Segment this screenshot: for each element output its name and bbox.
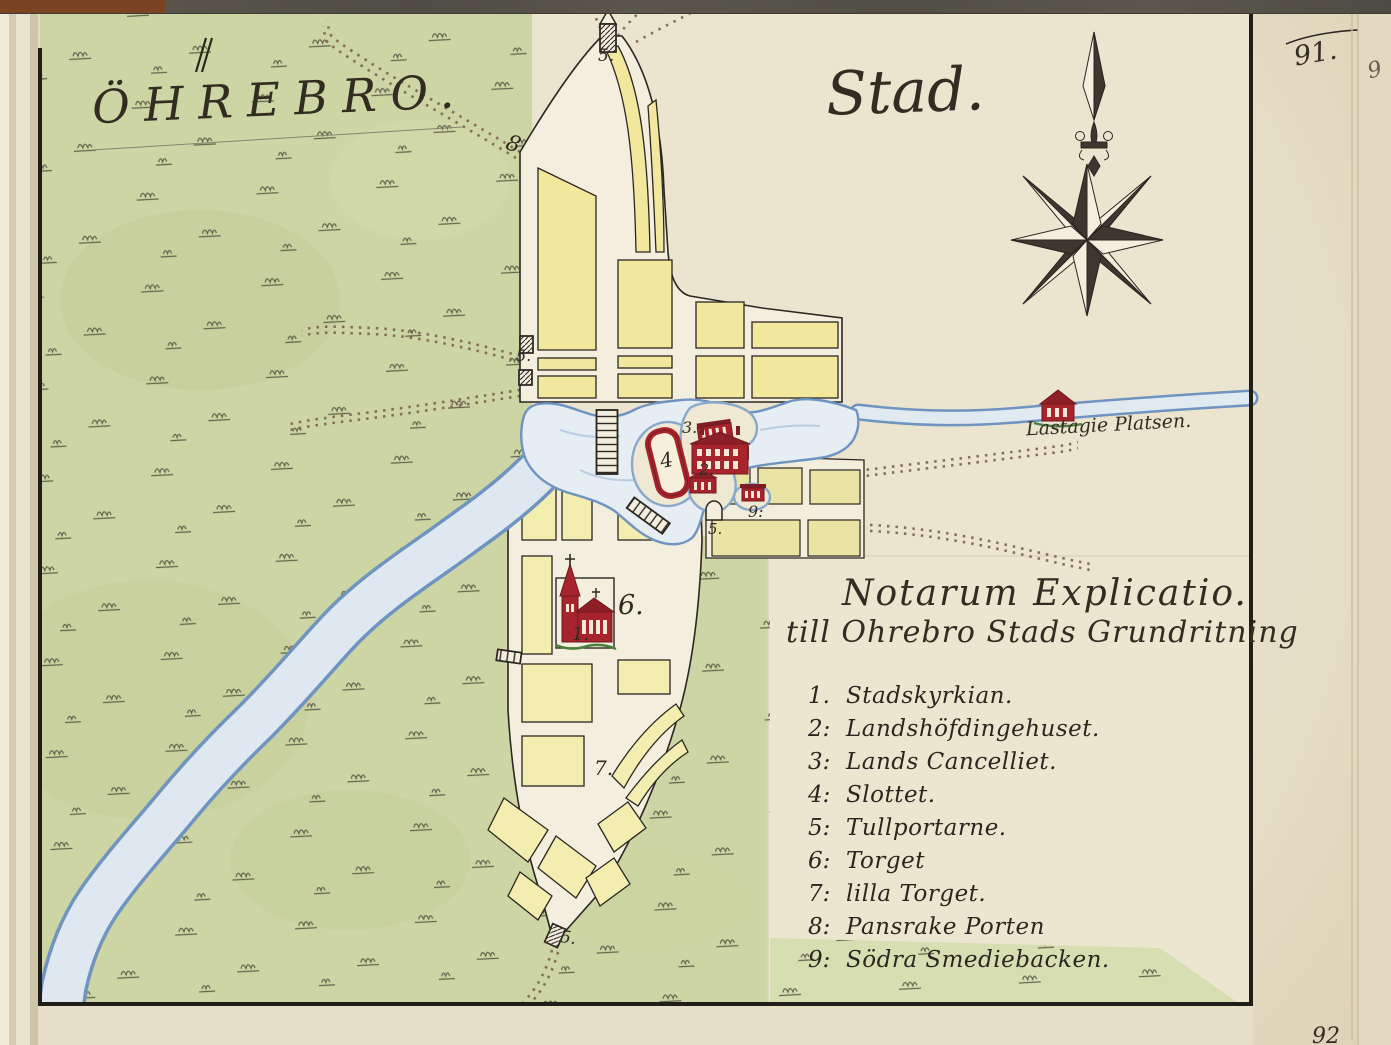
legend-item: 5:Tullportarne. (808, 815, 1110, 841)
legend-title: Notarum Explicatio. (842, 576, 1248, 612)
legend-item-number: 4: (808, 782, 846, 808)
south-gate-number: 5. (559, 929, 577, 948)
folio-number: 91. (1292, 36, 1339, 70)
legend-item-label: Torget (846, 848, 925, 874)
hofdingehus-number: 2. (699, 462, 714, 478)
north-gate-number: 5. (598, 48, 614, 65)
legend-item-label: Slottet. (846, 782, 936, 808)
cancelliet-number: 3. (682, 420, 697, 436)
smediebacken-street-number: 9: (748, 504, 764, 520)
legend-item-number: 8: (808, 914, 846, 940)
legend-item-label: Stadskyrkian. (846, 683, 1013, 709)
next-folio-number: 92 (1312, 1026, 1340, 1045)
legend-item-number: 1. (808, 683, 846, 709)
legend-item-number: 6: (808, 848, 846, 874)
torget-number: 6. (618, 592, 644, 619)
legend-item-number: 9: (808, 947, 846, 973)
book-page-edge (30, 0, 38, 1045)
legend-item-label: Södra Smediebacken. (846, 947, 1110, 973)
legend-item-label: Pansrake Porten (846, 914, 1045, 940)
legend-item: 3:Lands Cancelliet. (808, 749, 1110, 775)
book-page-edge (9, 0, 16, 1045)
book-page-edge (0, 0, 9, 1045)
legend-item-number: 5: (808, 815, 846, 841)
legend-item-number: 2: (808, 716, 846, 742)
legend-item-label: lilla Torget. (846, 881, 986, 907)
book-page-edge (16, 0, 30, 1045)
legend-item-label: Landshöfdingehuset. (846, 716, 1100, 742)
legend-item: 1.Stadskyrkian. (808, 683, 1110, 709)
map-drawing (0, 0, 1391, 1045)
legend-subtitle: till Ohrebro Stads Grundritning (786, 618, 1299, 648)
legend-item-label: Tullportarne. (846, 815, 1007, 841)
church-number: 1. (572, 626, 589, 644)
legend-item: 6:Torget (808, 848, 1110, 874)
legend-list: 1.Stadskyrkian. 2:Landshöfdingehuset. 3:… (808, 683, 1110, 973)
legend-item-number: 3: (808, 749, 846, 775)
legend-item: 9:Södra Smediebacken. (808, 947, 1110, 973)
east-gate-number: 5. (708, 522, 722, 537)
manuscript-map-page: ÖHREBRO. Stad. 91. 9 92 Lastagie Platsen… (0, 0, 1391, 1045)
map-title-right: Stad. (825, 59, 985, 124)
legend-item: 8:Pansrake Porten (808, 914, 1110, 940)
torn-top-edge (0, 0, 1391, 14)
legend-item-label: Lands Cancelliet. (846, 749, 1057, 775)
west-gate-number: 5. (516, 348, 531, 364)
legend-item-number: 7: (808, 881, 846, 907)
legend-item: 4:Slottet. (808, 782, 1110, 808)
islet-building (740, 484, 766, 501)
legend-item: 7:lilla Torget. (808, 881, 1110, 907)
lilla-torget-number: 7. (594, 758, 613, 778)
legend-item: 2:Landshöfdingehuset. (808, 716, 1110, 742)
